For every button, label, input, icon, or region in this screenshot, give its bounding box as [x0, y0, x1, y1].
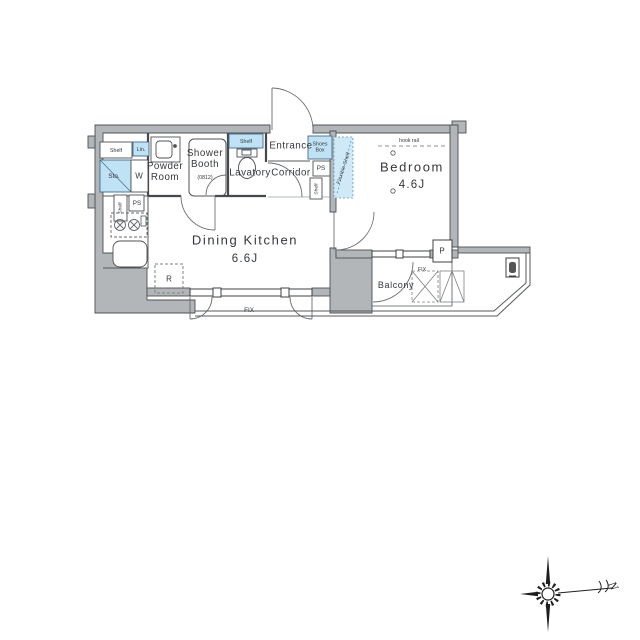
- floor-plan-drawing: [0, 0, 640, 640]
- powder-room-line2: Room: [147, 173, 183, 184]
- room-label-corridor: Corridor: [271, 168, 310, 179]
- ps-corridor-label: PS: [317, 164, 325, 171]
- room-size-dining-kitchen: 6.6J: [232, 253, 259, 265]
- fix-balcony-label: FIX: [418, 266, 426, 272]
- meter-box-icon: [506, 258, 519, 277]
- shower-booth-size: (0812): [197, 174, 212, 180]
- room-label-lavatory: Lavatory: [229, 168, 271, 179]
- room-label-balcony: Balcony: [378, 280, 414, 290]
- shoes-box-label: Shoes Box: [313, 141, 328, 153]
- outdoor-unit-boxes: [412, 271, 464, 302]
- room-label-shower-booth: Shower Booth: [187, 149, 223, 171]
- room-label-powder-room: Powder Room: [147, 162, 183, 184]
- shelf-top-label: Shelf: [110, 147, 122, 153]
- sink-icon: [113, 241, 147, 267]
- shoes-box-line2: Box: [313, 147, 328, 153]
- shelf-kitchen-label: Shelf: [117, 202, 123, 213]
- washbasin-icon: [151, 137, 180, 162]
- floor-plan-page: Dining Kitchen 6.6J Bedroom 4.6J Entranc…: [0, 0, 640, 640]
- ps-kitchen-label: PS: [133, 199, 141, 206]
- pipe-space-label: P: [439, 247, 444, 256]
- room-label-dining-kitchen: Dining Kitchen: [192, 233, 298, 248]
- refrigerator-label: R: [166, 275, 172, 284]
- compass-icon: [520, 556, 612, 632]
- shower-booth-line2: Booth: [187, 160, 223, 171]
- storage-boxes: [100, 142, 149, 221]
- shelf-lavatory-label: Shelf: [240, 138, 252, 144]
- room-label-entrance: Entrance: [269, 141, 312, 152]
- washer-label: W: [135, 172, 143, 181]
- storage-label: Sto.: [108, 172, 119, 179]
- hook-rail-label: hook rail: [399, 137, 419, 143]
- room-label-bedroom: Bedroom: [380, 160, 444, 175]
- fix-window-label: FIX: [244, 306, 254, 313]
- room-size-bedroom: 4.6J: [399, 179, 426, 191]
- linen-label: Lin.: [137, 146, 146, 152]
- shelf-corridor-label: Shelf: [313, 183, 319, 194]
